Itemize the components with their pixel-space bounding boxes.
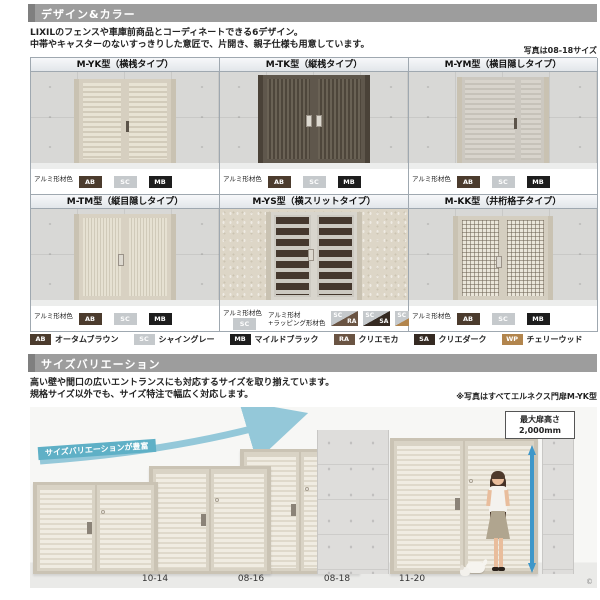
model-photo-m-tm [31, 209, 219, 306]
color-chip-sc: SC [492, 176, 515, 188]
chip-code-sc: SC [333, 312, 342, 319]
door-m-ym [457, 77, 549, 163]
max-height-value: 2,000mm [506, 425, 574, 436]
color-strip-m-tk: アルミ形材色 AB SC MB [220, 169, 408, 194]
door-m-tm [74, 214, 176, 300]
gate-post [365, 75, 370, 163]
chip-code-sc: SC [365, 312, 374, 319]
door-leaf [314, 212, 357, 300]
model-photo-m-yk [31, 72, 219, 169]
wrap-material-label1: アルミ形材 [268, 311, 325, 319]
copyright-mark: © [586, 578, 593, 586]
slit-panel [319, 217, 352, 295]
header-accent [28, 354, 35, 372]
model-name-m-tm: M-TM型（縦目隠しタイプ） [31, 195, 219, 209]
model-name-m-tk: M-TK型（縦桟タイプ） [220, 58, 408, 72]
legend-chip-mb: MB [230, 334, 251, 345]
dog-figure [458, 560, 488, 580]
legend-name-mb: マイルドブラック [255, 334, 319, 345]
gate-knob [101, 510, 105, 514]
gate-handle [291, 504, 296, 516]
color-chip-sc-sa: SCSA [363, 311, 390, 326]
door-handle [316, 115, 322, 127]
color-chip-mb: MB [149, 176, 172, 188]
gate-10-14 [33, 482, 158, 574]
door-handle [306, 115, 312, 127]
color-strip-m-yk: アルミ形材色 AB SC MB [31, 169, 219, 194]
legend-sc: SC シャイングレー [134, 334, 215, 345]
size-ribbon: サイズバリエーションが豊富 [38, 439, 156, 460]
legend-name-ra: クリエモカ [359, 334, 399, 345]
color-chip-sc: SC [114, 313, 137, 325]
legend-name-sa: クリエダーク [439, 334, 487, 345]
gate-post [171, 79, 176, 163]
color-strip-m-ys: アルミ形材色 SC アルミ形材 +ラッピング形材色 SCRA SCSA SCWP [220, 306, 408, 331]
color-legend: AB オータムブラウン SC シャイングレー MB マイルドブラック RA クリ… [30, 334, 583, 345]
gate-handle [201, 514, 206, 526]
photo-size-note: 写真は08-18サイズ [524, 45, 597, 56]
model-card-m-ys: M-YS型（横スリットタイプ） アルミ形材色 SC アルミ形材 [220, 195, 409, 332]
gate-post [171, 214, 176, 300]
legend-sa: SA クリエダーク [414, 334, 487, 345]
concrete-pillar [317, 430, 389, 574]
color-chip-ab: AB [268, 176, 291, 188]
max-height-label: 最大扉高さ 2,000mm [505, 411, 575, 439]
design-intro-line2: 中帯やキャスターのないすっきりした意匠で、片開き、親子仕様も用意しています。 [30, 39, 369, 51]
woman-leg [499, 538, 503, 568]
door-handle [126, 121, 129, 132]
catalog-page: デザイン&カラー LIXILのフェンスや車庫前商品とコーディネートできる6デザイ… [0, 0, 600, 600]
color-chip-sc-ra: SCRA [331, 311, 358, 326]
gate-handle [455, 498, 460, 510]
size-label-11-20: 11-20 [399, 574, 425, 584]
color-chip-sc: SC [303, 176, 326, 188]
design-section-header: デザイン&カラー [28, 4, 597, 22]
gate-leaf [97, 485, 155, 571]
gate-11-20 [390, 438, 538, 574]
gate-post [357, 212, 362, 300]
color-chip-sc: SC [492, 313, 515, 325]
size-photo-note: ※写真はすべてエルネクス門扉M-YK型 [456, 391, 597, 402]
gate-leaf [394, 441, 463, 571]
model-card-m-tm: M-TM型（縦目隠しタイプ） アルミ形材色 AB SC MB [31, 195, 220, 332]
legend-chip-sa: SA [414, 334, 435, 345]
model-card-m-ym: M-YM型（横目隠しタイプ） アルミ形材色 AB SC MB [409, 58, 598, 195]
door-handle [118, 254, 124, 266]
legend-wp: WP チェリーウッド [502, 334, 583, 345]
legend-name-wp: チェリーウッド [527, 334, 583, 345]
dog-tail [482, 559, 488, 567]
gate-leaf [211, 469, 267, 571]
legend-chip-ab: AB [30, 334, 51, 345]
door-leaf [125, 214, 171, 300]
gate-post [544, 77, 549, 163]
max-height-text: 最大扉高さ [506, 414, 574, 425]
door-m-tk [258, 75, 370, 163]
model-photo-m-kk [409, 209, 597, 306]
material-label: アルミ形材色 [223, 307, 262, 317]
legend-chip-wp: WP [502, 334, 523, 345]
door-m-ys [266, 212, 362, 300]
door-leaf-child [518, 77, 544, 163]
color-strip-m-ym: アルミ形材色 AB SC MB [409, 169, 597, 194]
color-chip-mb: MB [527, 176, 550, 188]
door-leaf [79, 79, 125, 163]
door-leaf [503, 216, 548, 300]
gate-08-16 [149, 466, 271, 574]
legend-ab: AB オータムブラウン [30, 334, 119, 345]
design-section-title: デザイン&カラー [41, 6, 136, 22]
size-label-08-18: 08-18 [324, 574, 350, 584]
door-leaf [263, 75, 314, 163]
slit-panel [276, 217, 309, 295]
size-intro-line2: 規格サイズ以外でも、サイズ特注で幅広く対応します。 [30, 389, 253, 401]
door-handle [514, 118, 517, 129]
size-label-08-16: 08-16 [238, 574, 264, 584]
legend-name-ab: オータムブラウン [55, 334, 119, 345]
door-leaf [271, 212, 314, 300]
model-name-m-kk: M-KK型（井桁格子タイプ） [409, 195, 597, 209]
model-photo-m-ys [220, 209, 408, 306]
door-m-yk [74, 79, 176, 163]
color-chip-mb: MB [527, 313, 550, 325]
chip-code-ra: RA [347, 318, 356, 325]
woman-hair-top [491, 471, 505, 479]
model-card-m-kk: M-KK型（井桁格子タイプ） アルミ形材色 AB SC MB [409, 195, 598, 332]
door-leaf [79, 214, 125, 300]
header-accent [28, 4, 35, 22]
door-leaf [125, 79, 171, 163]
size-intro-line1: 高い壁や間口の広いエントランスにも対応するサイズを取り揃えています。 [30, 377, 334, 389]
gate-knob [305, 487, 309, 491]
legend-name-sc: シャイングレー [159, 334, 215, 345]
color-chip-ab: AB [79, 176, 102, 188]
design-model-grid: M-YK型（横桟タイプ） アルミ形材色 AB SC MB [30, 57, 597, 332]
wrap-material-label2: +ラッピング形材色 [268, 319, 325, 327]
door-leaf [314, 75, 365, 163]
color-chip-sc: SC [233, 318, 256, 330]
color-chip-ab: AB [457, 313, 480, 325]
color-chip-mb: MB [338, 176, 361, 188]
chip-code-sc: SC [397, 312, 406, 319]
woman-shoe [498, 567, 505, 571]
door-leaf-parent [462, 77, 518, 163]
woman-leg [494, 538, 498, 568]
size-section-header: サイズバリエーション [28, 354, 597, 372]
color-strip-m-kk: アルミ形材色 AB SC MB [409, 306, 597, 331]
model-photo-m-tk [220, 72, 408, 169]
model-card-m-yk: M-YK型（横桟タイプ） アルミ形材色 AB SC MB [31, 58, 220, 195]
color-chip-ab: AB [79, 313, 102, 325]
gate-post [548, 216, 553, 300]
size-label-10-14: 10-14 [142, 574, 168, 584]
chip-code-sa: SA [379, 318, 388, 325]
legend-chip-sc: SC [134, 334, 155, 345]
door-m-kk [453, 216, 553, 300]
legend-chip-ra: RA [334, 334, 355, 345]
legend-mb: MB マイルドブラック [230, 334, 319, 345]
color-strip-m-tm: アルミ形材色 AB SC MB [31, 306, 219, 331]
model-name-m-ys: M-YS型（横スリットタイプ） [220, 195, 408, 209]
dog-ear [460, 565, 464, 570]
color-chip-sc: SC [114, 176, 137, 188]
door-leaf [458, 216, 503, 300]
model-name-m-yk: M-YK型（横桟タイプ） [31, 58, 219, 72]
model-photo-m-ym [409, 72, 597, 169]
legend-ra: RA クリエモカ [334, 334, 399, 345]
size-section-title: サイズバリエーション [41, 356, 160, 372]
gate-knob [469, 479, 473, 483]
model-name-m-ym: M-YM型（横目隠しタイプ） [409, 58, 597, 72]
size-illustration: サイズバリエーションが豊富 [30, 407, 597, 588]
gate-handle [87, 522, 92, 534]
color-chip-mb: MB [149, 313, 172, 325]
model-card-m-tk: M-TK型（縦桟タイプ） アルミ形材色 AB SC MB [220, 58, 409, 195]
woman-arm [504, 490, 510, 506]
door-handle [496, 256, 502, 268]
color-chip-ab: AB [457, 176, 480, 188]
design-intro-line1: LIXILのフェンスや車庫前商品とコーディネートできる6デザイン。 [30, 27, 303, 39]
concrete-pillar-right [542, 430, 574, 574]
